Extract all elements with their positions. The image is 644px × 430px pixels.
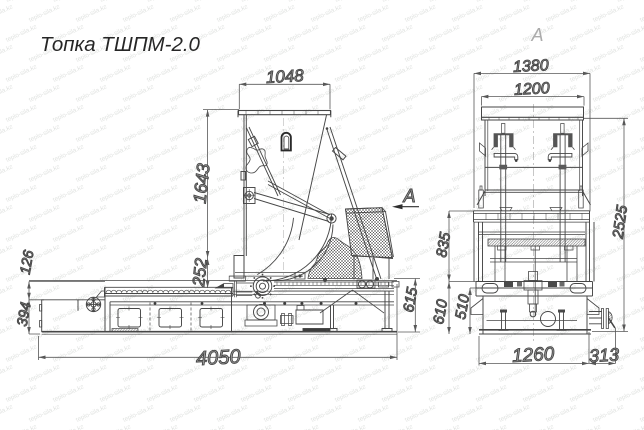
svg-text:teplo-sila.kz: teplo-sila.kz <box>451 363 484 383</box>
svg-text:teplo-sila.kz: teplo-sila.kz <box>616 423 644 430</box>
svg-text:teplo-sila.kz: teplo-sila.kz <box>52 423 85 430</box>
svg-text:teplo-sila.kz: teplo-sila.kz <box>334 343 367 363</box>
svg-text:teplo-sila.kz: teplo-sila.kz <box>28 163 61 183</box>
svg-text:teplo-sila.kz: teplo-sila.kz <box>99 143 132 163</box>
svg-text:teplo-sila.kz: teplo-sila.kz <box>475 263 508 283</box>
svg-text:teplo-sila.kz: teplo-sila.kz <box>498 3 531 23</box>
svg-text:teplo-sila.kz: teplo-sila.kz <box>146 63 179 83</box>
svg-text:teplo-sila.kz: teplo-sila.kz <box>357 123 390 143</box>
svg-text:teplo-sila.kz: teplo-sila.kz <box>146 223 179 243</box>
svg-text:teplo-sila.kz: teplo-sila.kz <box>381 63 414 83</box>
svg-text:teplo-sila.kz: teplo-sila.kz <box>451 243 484 263</box>
svg-text:teplo-sila.kz: teplo-sila.kz <box>357 3 390 23</box>
svg-text:teplo-sila.kz: teplo-sila.kz <box>592 363 625 383</box>
svg-text:teplo-sila.kz: teplo-sila.kz <box>569 103 602 123</box>
svg-text:1380: 1380 <box>513 57 550 76</box>
svg-text:teplo-sila.kz: teplo-sila.kz <box>616 303 644 323</box>
svg-text:teplo-sila.kz: teplo-sila.kz <box>428 263 461 283</box>
svg-text:teplo-sila.kz: teplo-sila.kz <box>75 123 108 143</box>
svg-text:teplo-sila.kz: teplo-sila.kz <box>5 183 38 203</box>
svg-text:teplo-sila.kz: teplo-sila.kz <box>75 323 108 343</box>
svg-text:teplo-sila.kz: teplo-sila.kz <box>475 23 508 43</box>
svg-text:teplo-sila.kz: teplo-sila.kz <box>428 143 461 163</box>
svg-text:teplo-sila.kz: teplo-sila.kz <box>498 283 531 303</box>
svg-text:teplo-sila.kz: teplo-sila.kz <box>522 383 555 403</box>
svg-text:teplo-sila.kz: teplo-sila.kz <box>616 383 644 403</box>
svg-text:1048: 1048 <box>265 66 304 87</box>
svg-text:teplo-sila.kz: teplo-sila.kz <box>263 43 296 63</box>
svg-text:teplo-sila.kz: teplo-sila.kz <box>122 403 155 423</box>
svg-text:teplo-sila.kz: teplo-sila.kz <box>616 23 644 43</box>
svg-text:teplo-sila.kz: teplo-sila.kz <box>428 423 461 430</box>
svg-text:A: A <box>403 186 416 206</box>
svg-text:teplo-sila.kz: teplo-sila.kz <box>616 343 644 363</box>
svg-text:teplo-sila.kz: teplo-sila.kz <box>357 43 390 63</box>
svg-text:teplo-sila.kz: teplo-sila.kz <box>404 43 437 63</box>
svg-text:teplo-sila.kz: teplo-sila.kz <box>569 23 602 43</box>
svg-text:teplo-sila.kz: teplo-sila.kz <box>5 143 38 163</box>
svg-text:teplo-sila.kz: teplo-sila.kz <box>99 383 132 403</box>
svg-text:1200: 1200 <box>514 80 551 99</box>
svg-text:teplo-sila.kz: teplo-sila.kz <box>169 203 202 223</box>
svg-text:teplo-sila.kz: teplo-sila.kz <box>5 383 38 403</box>
svg-text:teplo-sila.kz: teplo-sila.kz <box>592 43 625 63</box>
svg-text:teplo-sila.kz: teplo-sila.kz <box>451 3 484 23</box>
svg-text:teplo-sila.kz: teplo-sila.kz <box>52 143 85 163</box>
svg-text:teplo-sila.kz: teplo-sila.kz <box>263 3 296 23</box>
svg-text:teplo-sila.kz: teplo-sila.kz <box>263 403 296 423</box>
svg-text:teplo-sila.kz: teplo-sila.kz <box>616 263 644 283</box>
svg-text:teplo-sila.kz: teplo-sila.kz <box>146 103 179 123</box>
svg-text:teplo-sila.kz: teplo-sila.kz <box>310 83 343 103</box>
svg-text:teplo-sila.kz: teplo-sila.kz <box>75 203 108 223</box>
svg-text:teplo-sila.kz: teplo-sila.kz <box>263 323 296 343</box>
svg-text:teplo-sila.kz: teplo-sila.kz <box>52 343 85 363</box>
svg-text:teplo-sila.kz: teplo-sila.kz <box>451 403 484 423</box>
svg-text:teplo-sila.kz: teplo-sila.kz <box>52 303 85 323</box>
svg-text:teplo-sila.kz: teplo-sila.kz <box>216 323 249 343</box>
svg-text:teplo-sila.kz: teplo-sila.kz <box>0 3 14 23</box>
svg-text:teplo-sila.kz: teplo-sila.kz <box>193 143 226 163</box>
svg-text:teplo-sila.kz: teplo-sila.kz <box>381 343 414 363</box>
svg-text:teplo-sila.kz: teplo-sila.kz <box>639 203 644 223</box>
svg-text:teplo-sila.kz: teplo-sila.kz <box>169 323 202 343</box>
svg-text:teplo-sila.kz: teplo-sila.kz <box>404 163 437 183</box>
svg-text:teplo-sila.kz: teplo-sila.kz <box>569 423 602 430</box>
svg-text:teplo-sila.kz: teplo-sila.kz <box>592 3 625 23</box>
svg-text:835: 835 <box>433 230 454 258</box>
svg-text:teplo-sila.kz: teplo-sila.kz <box>122 3 155 23</box>
svg-text:teplo-sila.kz: teplo-sila.kz <box>0 243 14 263</box>
svg-text:teplo-sila.kz: teplo-sila.kz <box>287 303 320 323</box>
svg-text:teplo-sila.kz: teplo-sila.kz <box>240 383 273 403</box>
svg-text:teplo-sila.kz: teplo-sila.kz <box>451 43 484 63</box>
svg-text:teplo-sila.kz: teplo-sila.kz <box>404 3 437 23</box>
svg-text:1260: 1260 <box>512 344 556 367</box>
svg-text:teplo-sila.kz: teplo-sila.kz <box>5 223 38 243</box>
svg-text:teplo-sila.kz: teplo-sila.kz <box>28 123 61 143</box>
svg-text:teplo-sila.kz: teplo-sila.kz <box>592 123 625 143</box>
svg-text:teplo-sila.kz: teplo-sila.kz <box>475 343 508 363</box>
svg-text:teplo-sila.kz: teplo-sila.kz <box>99 343 132 363</box>
svg-text:teplo-sila.kz: teplo-sila.kz <box>428 103 461 123</box>
svg-text:teplo-sila.kz: teplo-sila.kz <box>522 423 555 430</box>
svg-text:teplo-sila.kz: teplo-sila.kz <box>310 323 343 343</box>
svg-text:teplo-sila.kz: teplo-sila.kz <box>616 63 644 83</box>
svg-text:teplo-sila.kz: teplo-sila.kz <box>240 343 273 363</box>
svg-text:teplo-sila.kz: teplo-sila.kz <box>28 403 61 423</box>
svg-text:teplo-sila.kz: teplo-sila.kz <box>569 183 602 203</box>
svg-text:teplo-sila.kz: teplo-sila.kz <box>216 83 249 103</box>
svg-text:teplo-sila.kz: teplo-sila.kz <box>216 3 249 23</box>
svg-text:teplo-sila.kz: teplo-sila.kz <box>310 43 343 63</box>
svg-text:teplo-sila.kz: teplo-sila.kz <box>616 183 644 203</box>
svg-text:teplo-sila.kz: teplo-sila.kz <box>193 383 226 403</box>
svg-text:teplo-sila.kz: teplo-sila.kz <box>287 383 320 403</box>
svg-text:615: 615 <box>400 285 421 313</box>
svg-text:teplo-sila.kz: teplo-sila.kz <box>404 243 437 263</box>
svg-text:teplo-sila.kz: teplo-sila.kz <box>0 403 14 423</box>
svg-text:teplo-sila.kz: teplo-sila.kz <box>334 423 367 430</box>
svg-text:teplo-sila.kz: teplo-sila.kz <box>357 363 390 383</box>
svg-text:teplo-sila.kz: teplo-sila.kz <box>75 3 108 23</box>
svg-text:teplo-sila.kz: teplo-sila.kz <box>592 243 625 263</box>
svg-text:teplo-sila.kz: teplo-sila.kz <box>310 403 343 423</box>
svg-text:teplo-sila.kz: teplo-sila.kz <box>122 163 155 183</box>
svg-text:teplo-sila.kz: teplo-sila.kz <box>122 83 155 103</box>
svg-text:teplo-sila.kz: teplo-sila.kz <box>99 303 132 323</box>
svg-text:teplo-sila.kz: teplo-sila.kz <box>428 343 461 363</box>
svg-text:teplo-sila.kz: teplo-sila.kz <box>498 243 531 263</box>
svg-text:teplo-sila.kz: teplo-sila.kz <box>451 123 484 143</box>
svg-text:teplo-sila.kz: teplo-sila.kz <box>75 363 108 383</box>
svg-text:teplo-sila.kz: teplo-sila.kz <box>146 383 179 403</box>
svg-text:teplo-sila.kz: teplo-sila.kz <box>381 423 414 430</box>
svg-text:teplo-sila.kz: teplo-sila.kz <box>5 343 38 363</box>
svg-text:teplo-sila.kz: teplo-sila.kz <box>52 223 85 243</box>
svg-text:teplo-sila.kz: teplo-sila.kz <box>75 163 108 183</box>
svg-text:teplo-sila.kz: teplo-sila.kz <box>357 83 390 103</box>
svg-text:teplo-sila.kz: teplo-sila.kz <box>193 303 226 323</box>
svg-text:teplo-sila.kz: teplo-sila.kz <box>639 403 644 423</box>
svg-text:teplo-sila.kz: teplo-sila.kz <box>334 63 367 83</box>
svg-text:teplo-sila.kz: teplo-sila.kz <box>639 83 644 103</box>
svg-text:teplo-sila.kz: teplo-sila.kz <box>639 283 644 303</box>
svg-text:teplo-sila.kz: teplo-sila.kz <box>522 183 555 203</box>
svg-text:4050: 4050 <box>196 346 242 370</box>
svg-text:teplo-sila.kz: teplo-sila.kz <box>75 243 108 263</box>
svg-text:teplo-sila.kz: teplo-sila.kz <box>404 83 437 103</box>
svg-text:teplo-sila.kz: teplo-sila.kz <box>639 43 644 63</box>
svg-text:teplo-sila.kz: teplo-sila.kz <box>287 103 320 123</box>
svg-text:teplo-sila.kz: teplo-sila.kz <box>122 123 155 143</box>
svg-text:teplo-sila.kz: teplo-sila.kz <box>451 163 484 183</box>
svg-text:teplo-sila.kz: teplo-sila.kz <box>451 83 484 103</box>
svg-text:313: 313 <box>589 345 620 367</box>
svg-text:teplo-sila.kz: teplo-sila.kz <box>592 83 625 103</box>
svg-text:252: 252 <box>189 257 211 289</box>
svg-text:teplo-sila.kz: teplo-sila.kz <box>287 343 320 363</box>
svg-text:teplo-sila.kz: teplo-sila.kz <box>240 143 273 163</box>
svg-text:teplo-sila.kz: teplo-sila.kz <box>498 403 531 423</box>
svg-text:teplo-sila.kz: teplo-sila.kz <box>381 143 414 163</box>
svg-text:teplo-sila.kz: teplo-sila.kz <box>381 23 414 43</box>
svg-text:teplo-sila.kz: teplo-sila.kz <box>0 163 14 183</box>
svg-text:126: 126 <box>18 248 38 276</box>
svg-text:teplo-sila.kz: teplo-sila.kz <box>545 43 578 63</box>
svg-text:teplo-sila.kz: teplo-sila.kz <box>99 423 132 430</box>
svg-text:1643: 1643 <box>190 163 214 205</box>
svg-text:teplo-sila.kz: teplo-sila.kz <box>428 183 461 203</box>
svg-text:teplo-sila.kz: teplo-sila.kz <box>569 263 602 283</box>
svg-text:teplo-sila.kz: teplo-sila.kz <box>639 123 644 143</box>
svg-text:teplo-sila.kz: teplo-sila.kz <box>99 63 132 83</box>
svg-text:teplo-sila.kz: teplo-sila.kz <box>52 383 85 403</box>
svg-text:teplo-sila.kz: teplo-sila.kz <box>475 103 508 123</box>
svg-text:teplo-sila.kz: teplo-sila.kz <box>193 103 226 123</box>
svg-text:610: 610 <box>430 297 451 325</box>
svg-text:394: 394 <box>15 301 35 328</box>
svg-text:teplo-sila.kz: teplo-sila.kz <box>240 223 273 243</box>
svg-text:teplo-sila.kz: teplo-sila.kz <box>0 123 14 143</box>
svg-text:teplo-sila.kz: teplo-sila.kz <box>475 383 508 403</box>
svg-text:teplo-sila.kz: teplo-sila.kz <box>263 243 296 263</box>
svg-text:teplo-sila.kz: teplo-sila.kz <box>263 363 296 383</box>
svg-text:teplo-sila.kz: teplo-sila.kz <box>381 383 414 403</box>
svg-text:teplo-sila.kz: teplo-sila.kz <box>428 63 461 83</box>
svg-text:teplo-sila.kz: teplo-sila.kz <box>5 23 38 43</box>
svg-text:teplo-sila.kz: teplo-sila.kz <box>616 103 644 123</box>
svg-text:teplo-sila.kz: teplo-sila.kz <box>193 223 226 243</box>
svg-text:teplo-sila.kz: teplo-sila.kz <box>545 403 578 423</box>
svg-text:teplo-sila.kz: teplo-sila.kz <box>0 323 14 343</box>
svg-text:teplo-sila.kz: teplo-sila.kz <box>28 3 61 23</box>
svg-text:teplo-sila.kz: teplo-sila.kz <box>169 3 202 23</box>
svg-text:teplo-sila.kz: teplo-sila.kz <box>75 403 108 423</box>
svg-text:teplo-sila.kz: teplo-sila.kz <box>639 163 644 183</box>
svg-text:teplo-sila.kz: teplo-sila.kz <box>357 403 390 423</box>
svg-text:teplo-sila.kz: teplo-sila.kz <box>639 243 644 263</box>
svg-text:teplo-sila.kz: teplo-sila.kz <box>334 303 367 323</box>
svg-text:teplo-sila.kz: teplo-sila.kz <box>287 143 320 163</box>
svg-text:teplo-sila.kz: teplo-sila.kz <box>52 103 85 123</box>
svg-text:teplo-sila.kz: teplo-sila.kz <box>193 423 226 430</box>
svg-text:teplo-sila.kz: teplo-sila.kz <box>334 103 367 123</box>
svg-text:teplo-sila.kz: teplo-sila.kz <box>639 323 644 343</box>
svg-text:teplo-sila.kz: teplo-sila.kz <box>475 423 508 430</box>
svg-text:teplo-sila.kz: teplo-sila.kz <box>404 123 437 143</box>
svg-text:Топка ТШПМ-2.0: Топка ТШПМ-2.0 <box>40 33 201 56</box>
svg-text:teplo-sila.kz: teplo-sila.kz <box>334 383 367 403</box>
svg-text:teplo-sila.kz: teplo-sila.kz <box>569 383 602 403</box>
svg-text:teplo-sila.kz: teplo-sila.kz <box>240 103 273 123</box>
svg-text:teplo-sila.kz: teplo-sila.kz <box>146 183 179 203</box>
svg-text:teplo-sila.kz: teplo-sila.kz <box>404 403 437 423</box>
svg-text:teplo-sila.kz: teplo-sila.kz <box>592 163 625 183</box>
svg-text:teplo-sila.kz: teplo-sila.kz <box>75 83 108 103</box>
svg-text:teplo-sila.kz: teplo-sila.kz <box>404 323 437 343</box>
svg-text:teplo-sila.kz: teplo-sila.kz <box>193 63 226 83</box>
svg-text:teplo-sila.kz: teplo-sila.kz <box>169 403 202 423</box>
svg-text:teplo-sila.kz: teplo-sila.kz <box>545 3 578 23</box>
svg-text:teplo-sila.kz: teplo-sila.kz <box>639 363 644 383</box>
svg-text:teplo-sila.kz: teplo-sila.kz <box>592 403 625 423</box>
svg-text:teplo-sila.kz: teplo-sila.kz <box>0 283 14 303</box>
svg-text:teplo-sila.kz: teplo-sila.kz <box>5 423 38 430</box>
svg-text:teplo-sila.kz: teplo-sila.kz <box>99 103 132 123</box>
svg-text:teplo-sila.kz: teplo-sila.kz <box>310 283 343 303</box>
svg-text:teplo-sila.kz: teplo-sila.kz <box>52 63 85 83</box>
svg-text:teplo-sila.kz: teplo-sila.kz <box>169 123 202 143</box>
svg-text:teplo-sila.kz: teplo-sila.kz <box>639 3 644 23</box>
svg-text:teplo-sila.kz: teplo-sila.kz <box>0 363 14 383</box>
svg-text:teplo-sila.kz: teplo-sila.kz <box>428 383 461 403</box>
svg-text:teplo-sila.kz: teplo-sila.kz <box>52 183 85 203</box>
svg-text:teplo-sila.kz: teplo-sila.kz <box>287 423 320 430</box>
svg-text:A: A <box>531 25 544 45</box>
svg-text:teplo-sila.kz: teplo-sila.kz <box>146 143 179 163</box>
svg-text:teplo-sila.kz: teplo-sila.kz <box>146 343 179 363</box>
svg-text:teplo-sila.kz: teplo-sila.kz <box>240 423 273 430</box>
svg-text:teplo-sila.kz: teplo-sila.kz <box>240 23 273 43</box>
svg-text:teplo-sila.kz: teplo-sila.kz <box>287 23 320 43</box>
svg-text:teplo-sila.kz: teplo-sila.kz <box>357 163 390 183</box>
svg-text:teplo-sila.kz: teplo-sila.kz <box>0 43 14 63</box>
svg-text:teplo-sila.kz: teplo-sila.kz <box>334 23 367 43</box>
svg-text:teplo-sila.kz: teplo-sila.kz <box>99 223 132 243</box>
svg-text:teplo-sila.kz: teplo-sila.kz <box>122 243 155 263</box>
svg-text:teplo-sila.kz: teplo-sila.kz <box>428 23 461 43</box>
svg-text:teplo-sila.kz: teplo-sila.kz <box>146 303 179 323</box>
svg-text:teplo-sila.kz: teplo-sila.kz <box>28 203 61 223</box>
svg-text:teplo-sila.kz: teplo-sila.kz <box>310 3 343 23</box>
svg-text:teplo-sila.kz: teplo-sila.kz <box>28 83 61 103</box>
svg-text:teplo-sila.kz: teplo-sila.kz <box>75 283 108 303</box>
svg-text:teplo-sila.kz: teplo-sila.kz <box>5 63 38 83</box>
svg-text:teplo-sila.kz: teplo-sila.kz <box>310 363 343 383</box>
svg-text:teplo-sila.kz: teplo-sila.kz <box>28 283 61 303</box>
svg-text:teplo-sila.kz: teplo-sila.kz <box>28 363 61 383</box>
svg-text:teplo-sila.kz: teplo-sila.kz <box>122 363 155 383</box>
svg-text:teplo-sila.kz: teplo-sila.kz <box>522 103 555 123</box>
svg-text:teplo-sila.kz: teplo-sila.kz <box>616 143 644 163</box>
svg-text:teplo-sila.kz: teplo-sila.kz <box>122 203 155 223</box>
svg-text:teplo-sila.kz: teplo-sila.kz <box>146 423 179 430</box>
svg-text:teplo-sila.kz: teplo-sila.kz <box>216 43 249 63</box>
svg-text:teplo-sila.kz: teplo-sila.kz <box>169 83 202 103</box>
svg-text:teplo-sila.kz: teplo-sila.kz <box>545 363 578 383</box>
svg-text:teplo-sila.kz: teplo-sila.kz <box>0 83 14 103</box>
svg-text:teplo-sila.kz: teplo-sila.kz <box>404 363 437 383</box>
svg-text:teplo-sila.kz: teplo-sila.kz <box>99 183 132 203</box>
svg-text:teplo-sila.kz: teplo-sila.kz <box>0 203 14 223</box>
svg-text:teplo-sila.kz: teplo-sila.kz <box>592 283 625 303</box>
svg-text:teplo-sila.kz: teplo-sila.kz <box>122 323 155 343</box>
svg-text:teplo-sila.kz: teplo-sila.kz <box>310 123 343 143</box>
svg-text:teplo-sila.kz: teplo-sila.kz <box>381 103 414 123</box>
svg-text:teplo-sila.kz: teplo-sila.kz <box>216 403 249 423</box>
svg-text:teplo-sila.kz: teplo-sila.kz <box>5 103 38 123</box>
